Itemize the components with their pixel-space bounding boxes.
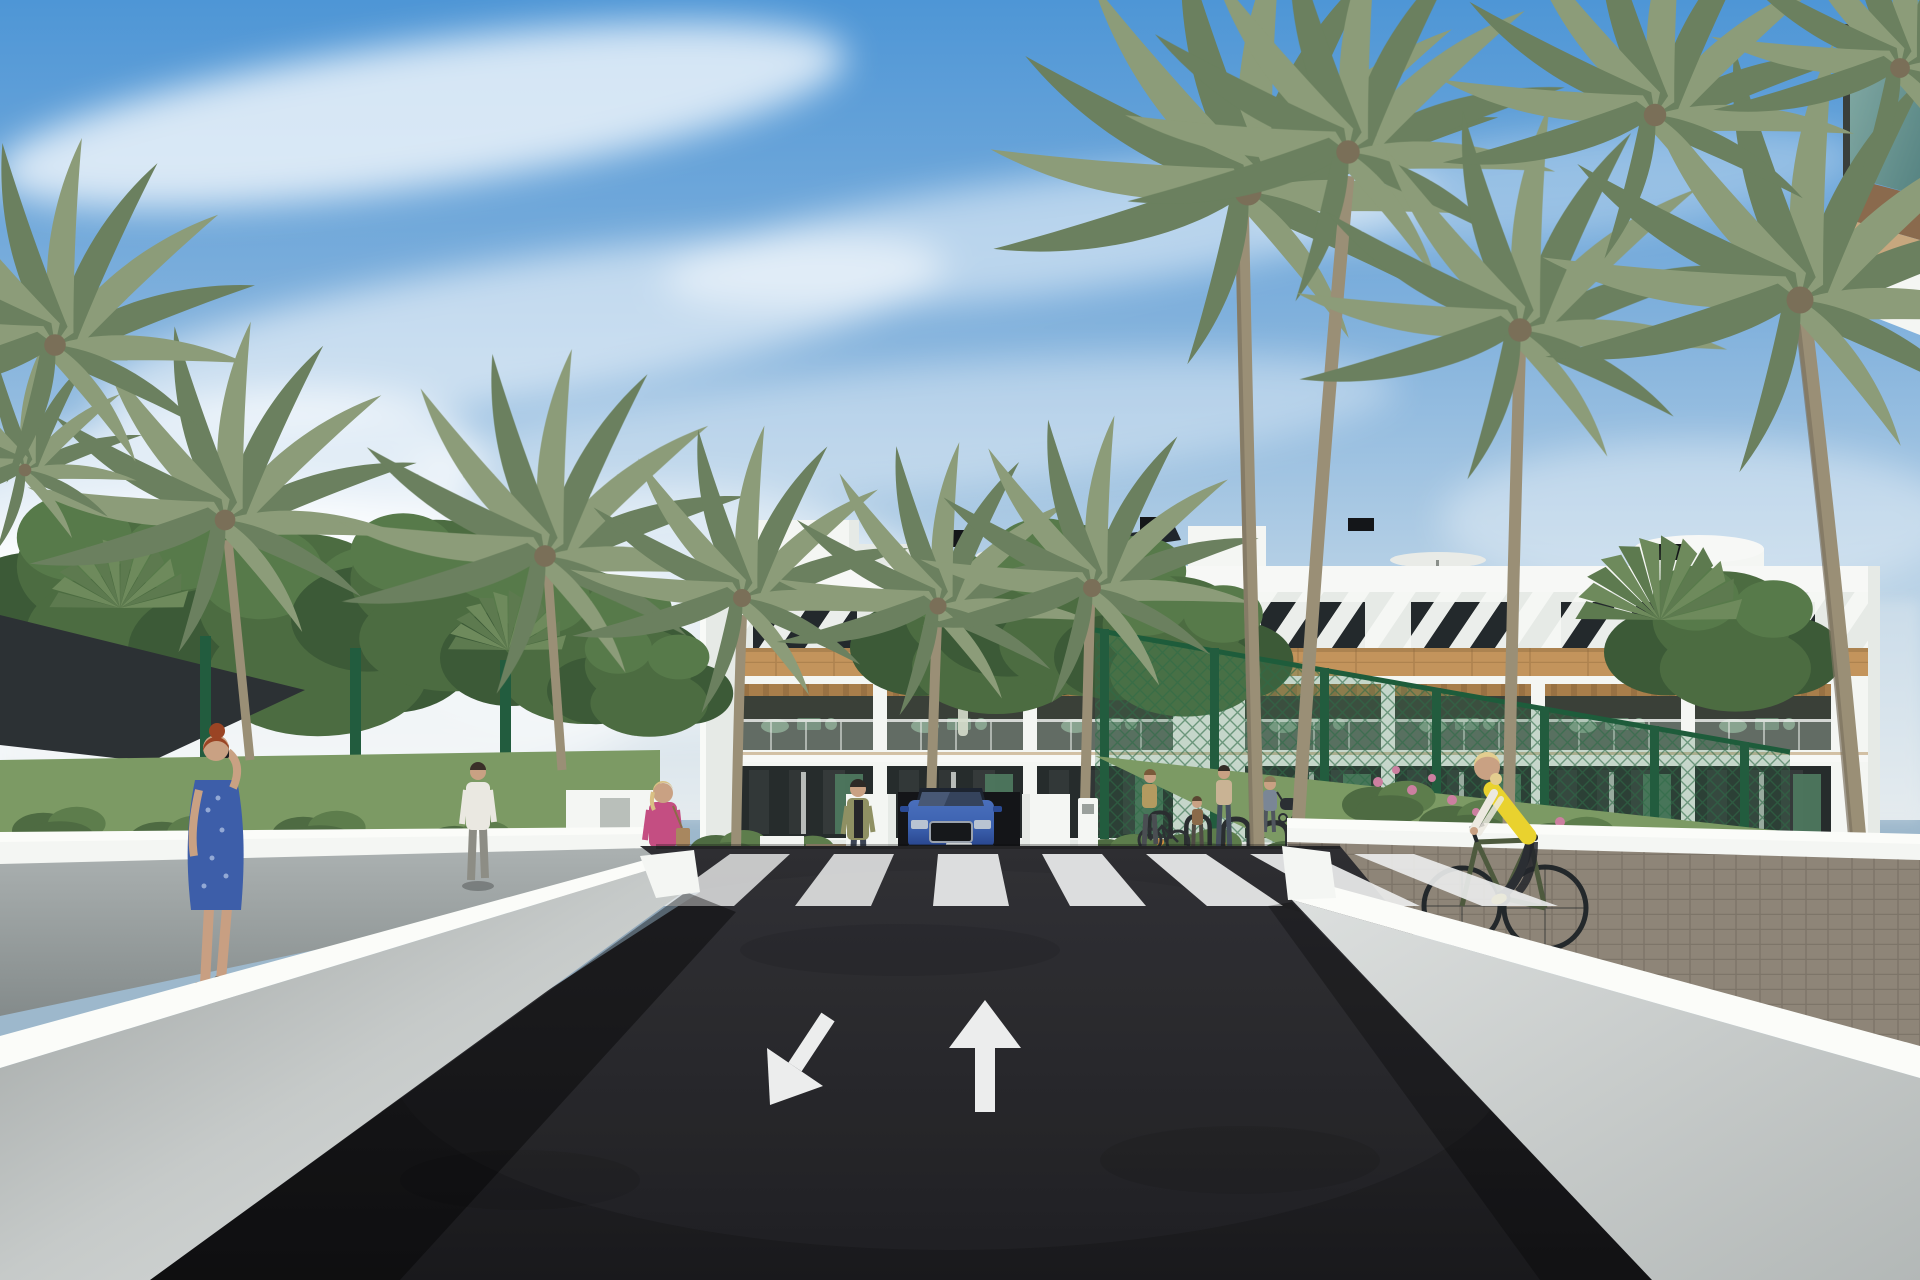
scene-svg: : [0,0,1920,1280]
render-viewport: Sunny 3D visualization of a white three-… [0,0,1920,1280]
handbag [676,828,690,846]
right-wall-end [1282,846,1336,900]
arrow-up-shaft [975,1046,995,1112]
